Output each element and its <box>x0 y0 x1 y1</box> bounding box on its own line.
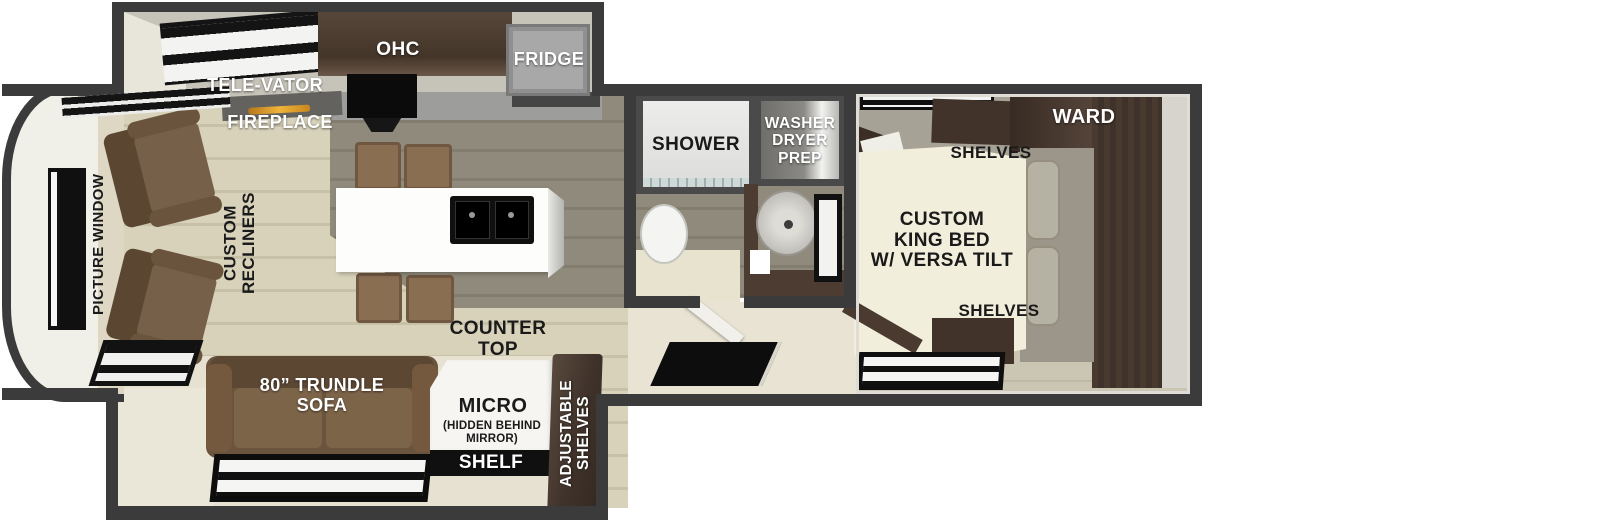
wall-left-lower <box>106 390 118 520</box>
wall-bath-bottom-b <box>744 296 856 308</box>
trundle-sofa-label: 80” TRUNDLE SOFA <box>236 374 408 418</box>
shower-shelf <box>643 178 749 187</box>
wall-slide-left <box>112 2 124 96</box>
sofa-arm-left <box>206 364 232 452</box>
dinette-chair <box>356 273 402 323</box>
vanity-sink <box>640 204 688 264</box>
toilet-flush <box>784 220 793 229</box>
sink-faucet-right <box>508 212 514 218</box>
counter-top-label: COUNTER TOP <box>436 314 560 366</box>
shelf-label: SHELF <box>434 450 548 476</box>
wall-bottom-mid <box>596 394 1202 406</box>
sink-bowl-left <box>455 201 490 239</box>
cabinet-end-panel <box>118 388 214 508</box>
wall-bath-bottom-a <box>624 296 700 308</box>
kitchen-island-edge <box>548 188 564 278</box>
wall-bottom-living <box>106 506 608 520</box>
dinette-chair <box>404 144 452 190</box>
wall-bath-left <box>624 94 636 306</box>
wall-slide-right <box>592 2 604 96</box>
picture-window-label: PICTURE WINDOW <box>86 136 112 352</box>
micro-note-label: (HIDDEN BEHIND MIRROR) <box>432 418 552 448</box>
bath-window-glass <box>819 200 837 276</box>
wall-right <box>1190 84 1202 406</box>
washer-dryer-label: WASHER DRYER PREP <box>760 110 840 172</box>
shower-label: SHOWER <box>646 132 746 158</box>
ohc-label: OHC <box>368 38 428 62</box>
shelves-top-label: SHELVES <box>936 142 1046 164</box>
adjustable-shelves-label: ADJUSTABLE SHELVES <box>551 362 599 504</box>
sofa-window <box>209 454 432 502</box>
televator-label: TELE-VATOR <box>190 74 340 98</box>
wall-slide-top <box>112 2 604 12</box>
custom-recliners-label: CUSTOM RECLINERS <box>212 168 268 318</box>
micro-label: MICRO <box>438 394 548 418</box>
shelves-bottom-label: SHELVES <box>944 300 1054 322</box>
bath-tray <box>750 250 770 274</box>
island-sink <box>450 196 534 244</box>
king-bed-label: CUSTOM KING BED W/ VERSA TILT <box>854 198 1030 284</box>
sink-faucet-left <box>469 212 475 218</box>
ward-label: WARD <box>1044 104 1124 130</box>
picture-window-glass <box>51 172 57 326</box>
floorplan-canvas: OHC FRIDGE TELE-VATOR FIREPLACE PICTURE … <box>0 0 1600 531</box>
bath-window <box>814 194 842 282</box>
tv-lift <box>347 74 417 118</box>
wall-cap-bottom <box>2 388 118 400</box>
sink-bowl-right <box>495 201 529 239</box>
entry-step <box>650 342 782 386</box>
fridge-label: FRIDGE <box>508 48 590 72</box>
toilet <box>756 190 818 256</box>
picture-window <box>48 168 86 330</box>
fireplace-label: FIREPLACE <box>215 112 345 134</box>
dinette-chair <box>355 142 401 190</box>
